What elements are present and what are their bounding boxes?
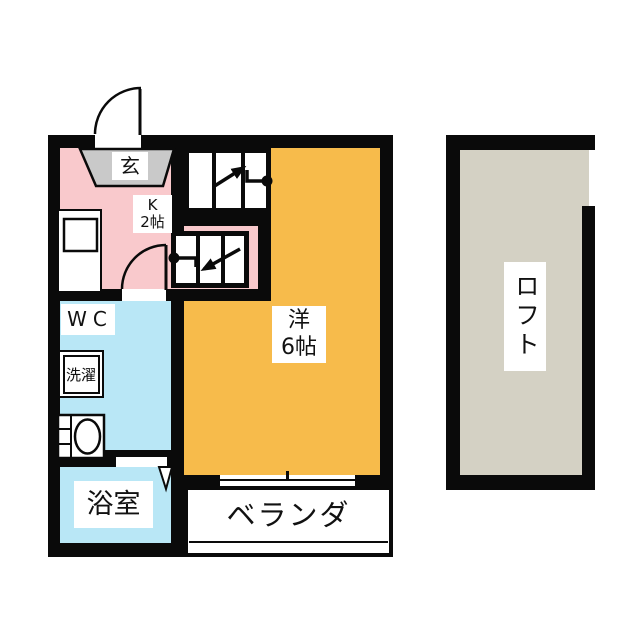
laundry-box: 洗濯 (58, 350, 104, 398)
loft-label: ロフト (504, 262, 546, 371)
floor-plan-page: { "floorplan": { "unit": { "entrance_lab… (0, 0, 640, 640)
veranda-label: ベランダ (189, 492, 388, 540)
bathroom-label: 浴室 (74, 481, 153, 528)
entrance-door-opening (95, 135, 141, 148)
entrance-door-leaf-icon (139, 89, 142, 135)
loft-fill-upper (460, 150, 589, 206)
western-room-label: 洋 6帖 (272, 306, 326, 363)
lower-stairs (171, 231, 249, 288)
loft-wall-right (582, 206, 595, 490)
bathroom-door-opening (116, 457, 167, 467)
kitchen-door-opening (122, 289, 166, 301)
upper-stairs-step-line (212, 153, 216, 208)
lower-stairs-step-line (196, 236, 200, 283)
wall-right-of-lower-stairs (258, 212, 271, 301)
upper-stairs-step-line (241, 153, 245, 208)
loft-wall-top (446, 135, 595, 150)
sliding-window-tick (286, 471, 289, 481)
entrance-door-arc-icon (95, 88, 141, 134)
lower-stairs-step-line (221, 236, 225, 283)
kitchen-label: K 2帖 (133, 195, 172, 233)
wc-label: WC (61, 304, 115, 335)
loft-wall-left (446, 135, 460, 490)
entrance-label: 玄 (112, 152, 148, 180)
laundry-label: 洗濯 (63, 355, 100, 394)
wall-kitchen-stairs (171, 148, 184, 232)
veranda-inner-line (189, 541, 388, 543)
upper-stairs (184, 148, 271, 213)
loft-wall-bottom (446, 475, 595, 490)
